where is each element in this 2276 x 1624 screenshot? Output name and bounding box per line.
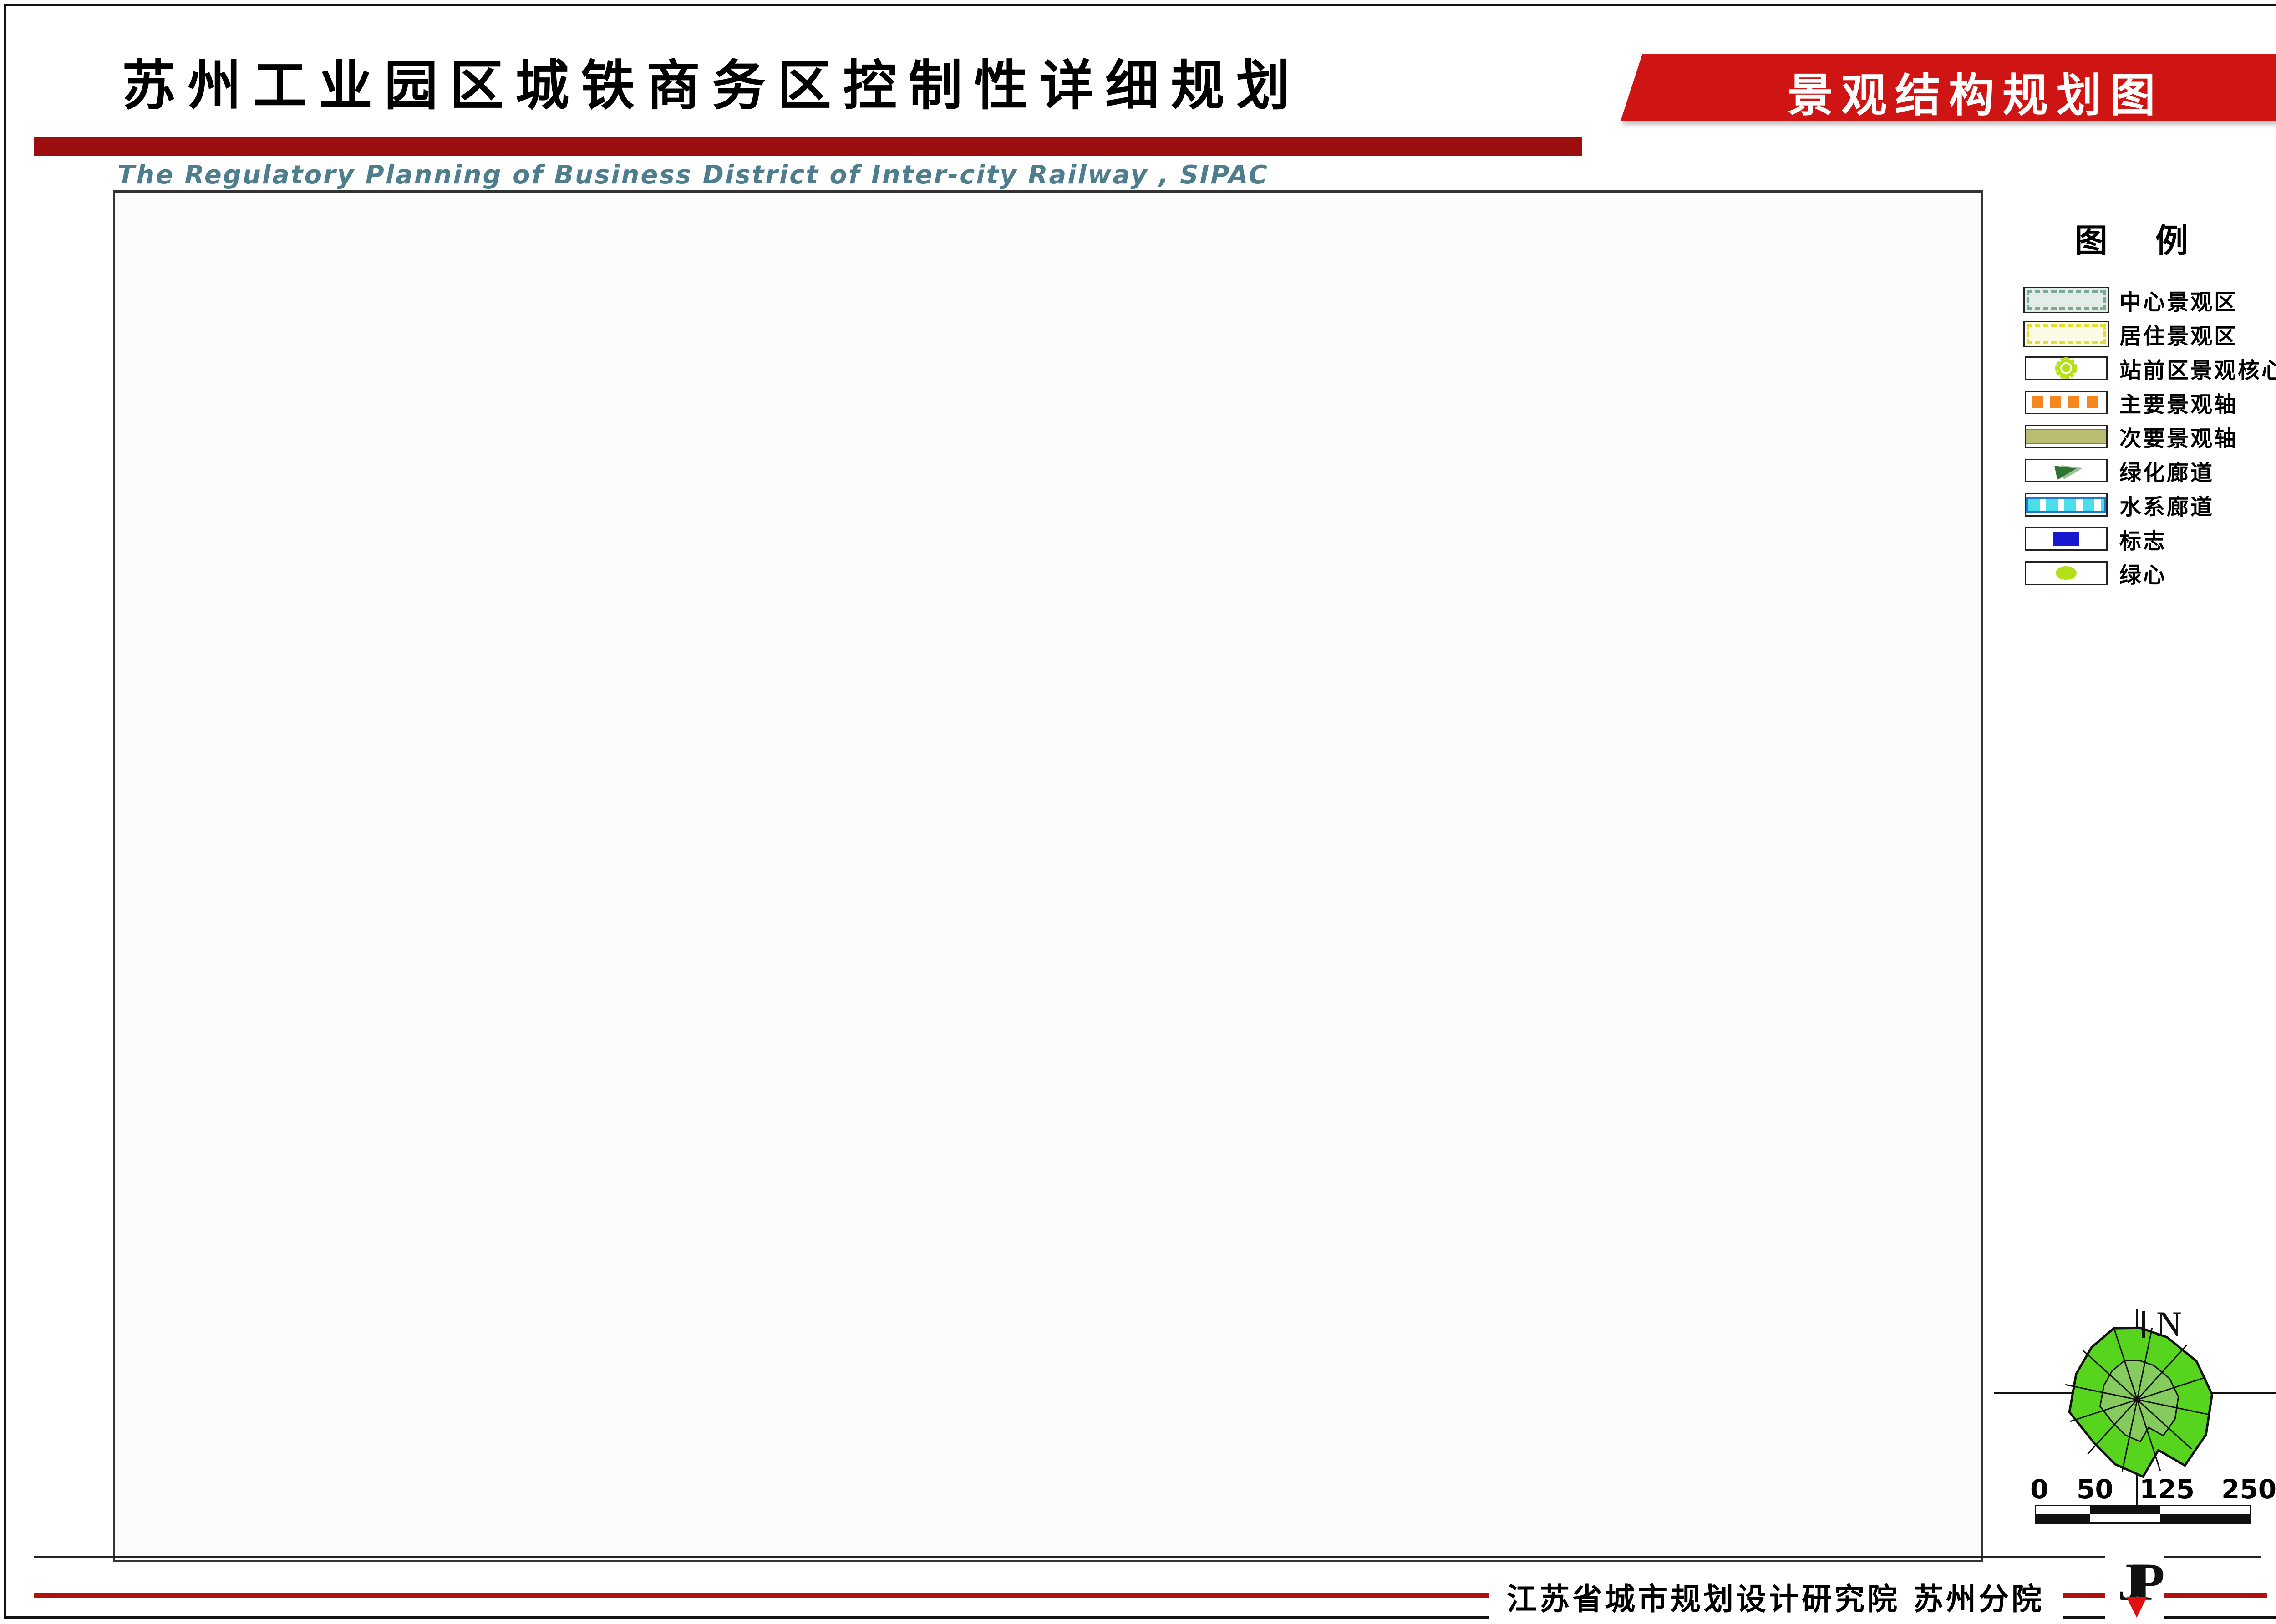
title-underline	[34, 137, 1582, 156]
jp-logo-mark	[2126, 1597, 2147, 1618]
legend-item-station_core: 站前区景观核心	[2025, 351, 2276, 385]
legend-label: 标志	[2119, 523, 2167, 555]
residential_area-swatch	[2025, 322, 2108, 346]
legend-item-landmark: 标志	[2025, 522, 2276, 556]
green_heart-swatch	[2025, 561, 2108, 585]
banner-title: 景观结构规划图	[1666, 58, 2276, 124]
footer-divider	[34, 1556, 2261, 1558]
legend-label: 主要景观轴	[2119, 386, 2238, 418]
legend-item-center_area: 中心景观区	[2025, 283, 2276, 317]
page-title: 苏州工业园区城铁商务区控制性详细规划	[122, 42, 1302, 120]
footer-institute: 江苏省城市规划设计研究院 苏州分院	[1489, 1569, 2063, 1624]
scale-label: 125	[2139, 1474, 2195, 1505]
scalebar	[2035, 1505, 2251, 1524]
legend: 图 例 中心景观区居住景观区站前区景观核心主要景观轴次要景观轴绿化廊道水系廊道标…	[2025, 214, 2276, 590]
station_core-swatch	[2025, 356, 2108, 380]
secondary_axis-swatch	[2025, 425, 2108, 448]
legend-item-green_heart: 绿心	[2025, 556, 2276, 590]
legend-title: 图 例	[2075, 214, 2276, 262]
scale-label: 250M	[2221, 1474, 2276, 1505]
legend-item-green_corridor: 绿化廊道	[2025, 453, 2276, 487]
legend-label: 站前区景观核心	[2119, 352, 2276, 384]
green_corridor-swatch	[2025, 459, 2108, 482]
scale-label: 50	[2077, 1474, 2113, 1505]
main_axis-swatch	[2025, 391, 2108, 414]
landmark-swatch	[2025, 527, 2108, 551]
legend-item-residential_area: 居住景观区	[2025, 317, 2276, 351]
jp-logo: JP	[2105, 1551, 2164, 1619]
center_area-swatch	[2025, 288, 2108, 312]
water_corridor-swatch	[2025, 493, 2108, 517]
map-area	[113, 190, 1983, 1562]
legend-label: 居住景观区	[2119, 318, 2238, 350]
legend-label: 绿化廊道	[2119, 455, 2214, 487]
planning-map-page: { "page": { "title": "苏州工业园区城铁商务区控制性详细规划…	[0, 0, 2276, 1622]
scale-label: 0	[2030, 1474, 2048, 1505]
legend-item-water_corridor: 水系廊道	[2025, 487, 2276, 522]
legend-label: 次要景观轴	[2119, 421, 2238, 452]
legend-label: 中心景观区	[2119, 284, 2238, 316]
legend-item-main_axis: 主要景观轴	[2025, 385, 2276, 419]
legend-items: 中心景观区居住景观区站前区景观核心主要景观轴次要景观轴绿化廊道水系廊道标志绿心	[2025, 283, 2276, 590]
legend-label: 绿心	[2119, 557, 2167, 589]
legend-label: 水系廊道	[2119, 489, 2214, 521]
legend-item-secondary_axis: 次要景观轴	[2025, 419, 2276, 453]
page-subtitle: The Regulatory Planning of Business Dist…	[117, 160, 1269, 190]
